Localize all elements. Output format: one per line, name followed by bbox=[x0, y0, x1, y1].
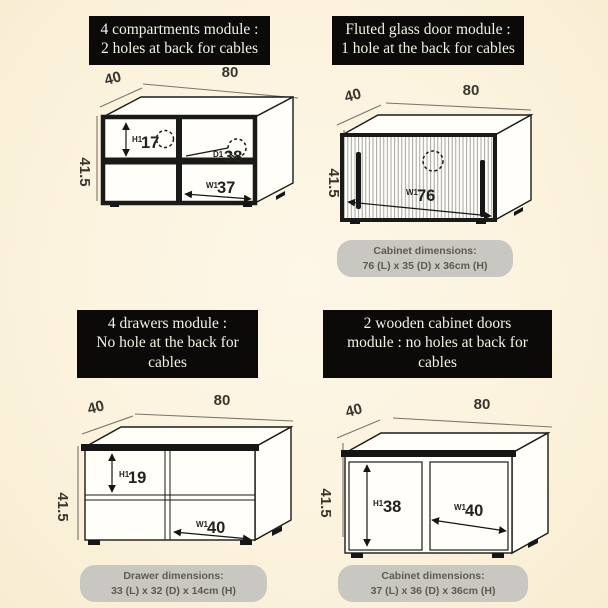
h1-value: 17 bbox=[141, 134, 159, 152]
cabinet-side-face bbox=[255, 427, 291, 540]
depth-label: 40 bbox=[103, 68, 124, 89]
h1-value: 19 bbox=[128, 469, 146, 487]
foot bbox=[240, 540, 252, 545]
module-fluted: Fluted glass door module : 1 hole at the… bbox=[304, 0, 608, 304]
furniture-dimensions-infographic: 4 compartments module : 2 holes at back … bbox=[0, 0, 608, 608]
cabinet-side-face bbox=[512, 433, 548, 553]
height-label: 41.5 bbox=[317, 488, 334, 517]
height-label: 41.5 bbox=[325, 168, 342, 197]
dimensions-pill: Drawer dimensions: 33 (L) x 32 (D) x 14c… bbox=[80, 565, 267, 602]
width-label: 80 bbox=[222, 64, 239, 81]
dimensions-pill: Cabinet dimensions: 37 (L) x 36 (D) x 36… bbox=[338, 565, 528, 602]
width-dim-line bbox=[386, 103, 531, 110]
width-dim-line bbox=[143, 84, 298, 98]
w1-value: 40 bbox=[207, 519, 225, 537]
pill-value: 76 (L) x 35 (D) x 36cm (H) bbox=[345, 259, 505, 274]
w1-value: 76 bbox=[417, 187, 435, 205]
module-drawers: 4 drawers module : No hole at the back f… bbox=[0, 304, 304, 608]
depth-label: 40 bbox=[344, 400, 365, 421]
pill-label: Cabinet dimensions: bbox=[346, 569, 520, 584]
top-edge-strip bbox=[81, 444, 259, 451]
foot bbox=[110, 203, 119, 207]
depth-label: 40 bbox=[86, 397, 107, 418]
foot bbox=[492, 553, 504, 558]
cabinet-drawing-compartments: 40 80 41.5 H1 17 D1 38 bbox=[0, 0, 304, 304]
h1-value: 38 bbox=[383, 498, 401, 516]
height-label: 41.5 bbox=[76, 157, 93, 186]
height-label: 41.5 bbox=[54, 492, 71, 521]
width-label: 80 bbox=[474, 396, 491, 413]
foot bbox=[88, 540, 100, 545]
pill-value: 33 (L) x 32 (D) x 14cm (H) bbox=[88, 584, 259, 599]
module-doors: 2 wooden cabinet doors module : no holes… bbox=[304, 304, 608, 608]
depth-dim-line bbox=[337, 420, 380, 438]
foot bbox=[476, 220, 486, 224]
width-label: 80 bbox=[214, 392, 231, 409]
door-handle bbox=[356, 152, 361, 209]
cabinet-drawing-doors: 40 80 41.5 H1 38 W1 40 bbox=[304, 304, 608, 608]
pill-label: Cabinet dimensions: bbox=[345, 244, 505, 259]
fluted-glass-door bbox=[342, 135, 495, 220]
d1-prefix: D1 bbox=[213, 150, 224, 159]
pill-label: Drawer dimensions: bbox=[88, 569, 259, 584]
w1-value: 37 bbox=[217, 179, 235, 197]
dimensions-pill: Cabinet dimensions: 76 (L) x 35 (D) x 36… bbox=[337, 240, 513, 277]
foot bbox=[351, 553, 363, 558]
width-dim-line bbox=[393, 418, 552, 427]
foot bbox=[276, 191, 285, 200]
depth-label: 40 bbox=[343, 85, 364, 106]
w1-value: 40 bbox=[465, 502, 483, 520]
foot bbox=[350, 220, 360, 224]
cabinet-drawing-drawers: 40 80 41.5 H1 19 W1 40 bbox=[0, 304, 304, 608]
width-label: 80 bbox=[463, 82, 480, 99]
d1-value: 38 bbox=[224, 148, 242, 166]
top-edge-strip bbox=[341, 450, 516, 457]
pill-value: 37 (L) x 36 (D) x 36cm (H) bbox=[346, 584, 520, 599]
module-compartments: 4 compartments module : 2 holes at back … bbox=[0, 0, 304, 304]
foot bbox=[243, 203, 252, 207]
width-dim-line bbox=[135, 414, 293, 421]
door-handle bbox=[480, 160, 485, 217]
